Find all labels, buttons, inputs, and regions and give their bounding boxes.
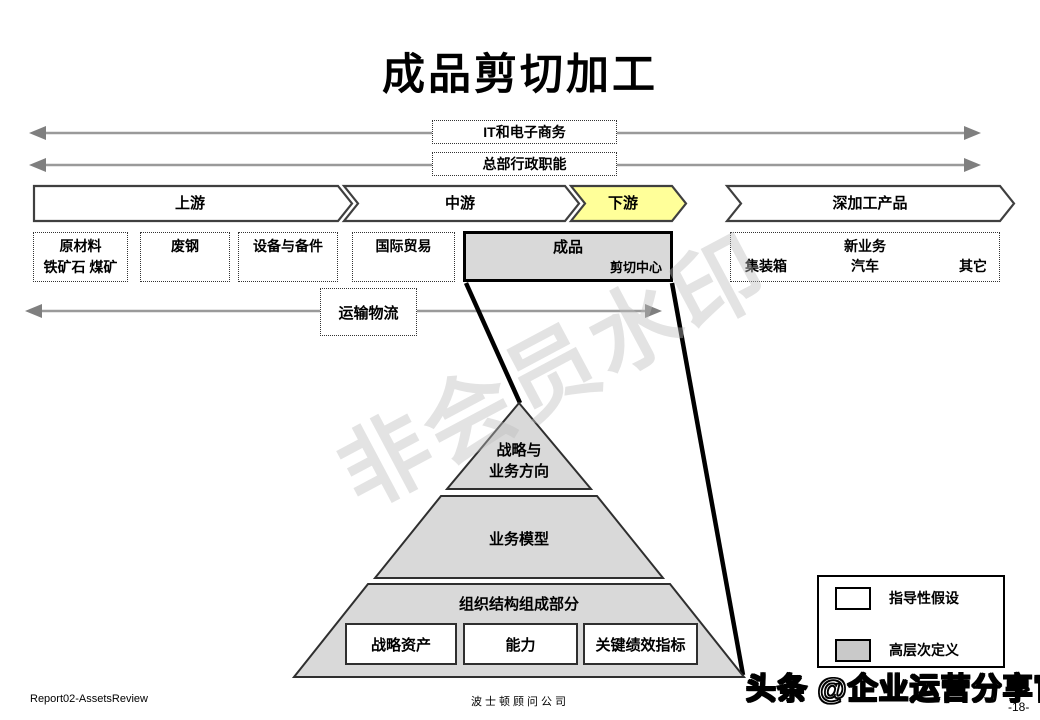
box-finished-product: 成品 剪切中心	[463, 231, 673, 282]
chevron-upstream-label: 上游	[60, 192, 320, 216]
box-equipment-parts: 设备与备件	[238, 232, 338, 282]
box-new-business: 集装箱 新业务 汽车 其它	[730, 232, 1000, 282]
page-title: 成品剪切加工	[0, 40, 1040, 102]
footer-company-name: 波士顿顾问公司	[0, 693, 1040, 709]
it-ecommerce-label: IT和电子商务	[432, 120, 617, 144]
pyramid-tier2-label: 业务模型	[429, 528, 609, 549]
chevron-downstream-label: 下游	[573, 192, 673, 216]
footer-page-number: -18-	[1008, 700, 1029, 714]
slide-canvas: 成品剪切加工 IT和电子商务 总部行政职能 上游 中游 下游 深加工产品 原材料…	[0, 0, 1040, 720]
pyramid-tier3-label: 组织结构组成部分	[369, 593, 669, 614]
box-scrap-steel: 废钢	[140, 232, 230, 282]
tier1-line1: 战略与	[439, 440, 599, 461]
raw-materials-line2: 铁矿石 煤矿	[34, 257, 127, 278]
legend-label-guiding-assumption: 指导性假设	[889, 587, 959, 610]
chevron-deep-processing-label: 深加工产品	[750, 192, 990, 216]
box-strategic-assets: 战略资产	[345, 623, 457, 665]
shearing-center-label: 剪切中心	[466, 257, 670, 276]
raw-materials-line1: 原材料	[34, 236, 127, 257]
pyramid-tier1-label: 战略与 业务方向	[439, 440, 599, 482]
box-capability: 能力	[463, 623, 578, 665]
tier1-line2: 业务方向	[439, 461, 599, 482]
finished-product-title: 成品	[466, 236, 670, 257]
legend-label-high-level-definition: 高层次定义	[889, 639, 959, 662]
legend: 指导性假设 高层次定义	[817, 575, 1005, 668]
legend-swatch-white	[835, 587, 871, 610]
hq-admin-label: 总部行政职能	[432, 152, 617, 176]
logistics-label: 运输物流	[320, 288, 417, 336]
other-label: 其它	[959, 256, 987, 276]
box-kpi: 关键绩效指标	[583, 623, 698, 665]
chevron-midstream-label: 中游	[370, 192, 550, 216]
new-business-label: 新业务	[731, 236, 999, 256]
legend-swatch-gray	[835, 639, 871, 662]
box-intl-trade: 国际贸易	[352, 232, 455, 282]
box-raw-materials: 原材料 铁矿石 煤矿	[33, 232, 128, 282]
